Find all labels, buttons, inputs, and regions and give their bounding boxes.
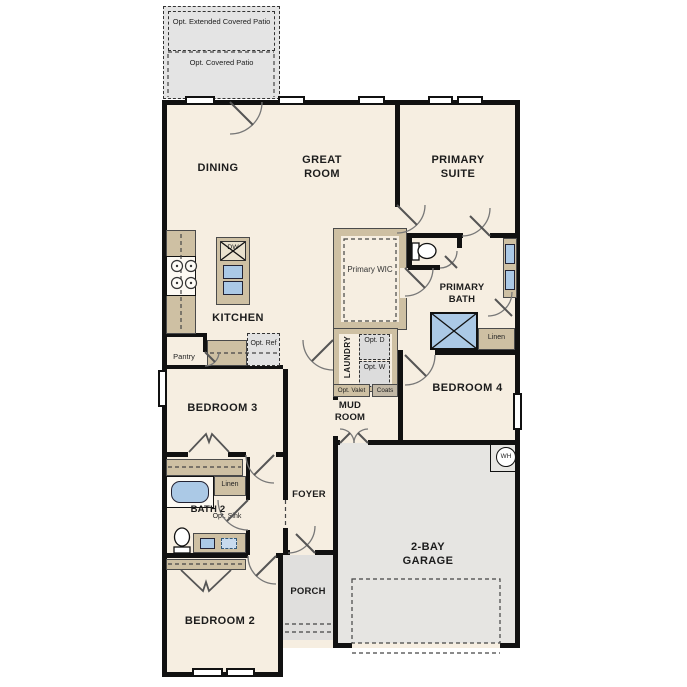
wall [283,369,288,500]
opt-washer-label: Opt. W [360,364,389,372]
window [185,96,215,105]
window [278,96,305,105]
kitchen-counter-2 [207,340,247,366]
foyer-label: FOYER [286,489,332,501]
wall [315,550,338,555]
wall [276,553,283,558]
opt-dryer-label: Opt. D [360,337,389,345]
bath2-tub [171,481,209,503]
wic-door-gap [400,268,408,298]
opt-valet-label: Opt. Valet [333,387,370,394]
bedroom3-label: BEDROOM 3 [175,401,270,415]
window [158,370,167,407]
wall [500,643,520,648]
opt-ref-label: Opt. Ref [249,340,278,348]
primary-suite-label: PRIMARY SUITE [420,153,496,182]
wall [228,452,246,457]
window [358,96,385,105]
wall [333,436,338,443]
bath2-linen-label: Linen [214,481,246,489]
wall [246,530,250,555]
floor-plan: Opt. Extended Covered Patio Opt. Covered… [0,0,687,687]
wall [246,457,250,500]
wall [457,233,462,248]
bath2-sink [200,538,215,549]
window [428,96,453,105]
primary-wic-label: Primary WIC [345,265,395,275]
wall [333,643,352,648]
bedroom4-label: BEDROOM 4 [420,381,515,395]
porch-label: PORCH [284,586,332,598]
wall [395,100,400,207]
wall [333,443,338,648]
primary-linen-label: Linen [478,334,515,342]
wall [278,555,283,677]
coats-label: Coats [372,387,398,394]
dining-label: DINING [178,161,258,175]
island-sink [223,265,243,279]
wall [407,265,440,270]
window [226,668,255,677]
wall [162,452,188,457]
garage-label: 2-BAY GARAGE [390,540,466,569]
wall [435,350,515,355]
opt-covered-patio-label: Opt. Covered Patio [171,58,272,67]
laundry-label: LAUNDRY [343,327,355,387]
kitchen-label: KITCHEN [200,311,276,325]
bedroom3-closet [166,459,243,476]
house-floor-left-wing [162,100,283,677]
mud-room-label: MUD ROOM [328,400,372,425]
dishwasher-label: DW [220,244,246,252]
window [513,393,522,430]
window [457,96,483,105]
primary-bath-label: PRIMARY BATH [430,282,494,307]
primary-sink [505,244,515,264]
wall [515,100,520,648]
island-sink [223,281,243,295]
window [192,668,223,677]
bedroom2-closet [166,559,246,570]
bedroom2-label: BEDROOM 2 [165,614,275,628]
primary-shower [430,312,478,350]
wall [283,550,290,555]
wic-floor [341,236,399,322]
opt-extended-patio-label: Opt. Extended Covered Patio [171,17,272,26]
wall [162,553,248,558]
opt-ref-box [247,333,280,366]
primary-sink [505,270,515,290]
water-heater-label: WH [496,453,516,460]
wall [398,350,403,443]
wall [276,452,283,457]
bath2-opt-sink [221,538,237,549]
great-room-label: GREAT ROOM [292,153,352,182]
pantry-label: Pantry [164,352,204,361]
bath2-label: BATH 2 [190,504,226,516]
range-stove [166,256,196,296]
